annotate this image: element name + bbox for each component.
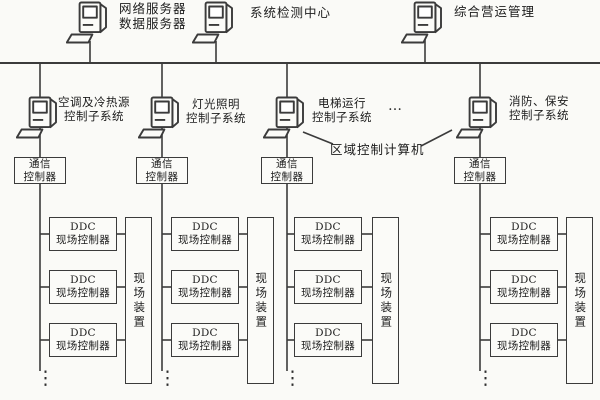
more-subsystems-ellipsis: … — [388, 98, 404, 114]
field-device-label: 现场装置 — [380, 272, 392, 330]
ddc-controller-box: DDC 现场控制器 — [294, 217, 362, 251]
field-device-label: 现场装置 — [574, 272, 586, 330]
bus-continuation-ellipsis: ⋮ — [476, 369, 495, 388]
comm-controller-box: 通信 控制器 — [14, 157, 66, 184]
field-device-box: 现场装置 — [247, 217, 274, 384]
comm-controller-box: 通信 控制器 — [454, 157, 506, 184]
ddc-controller-box: DDC 现场控制器 — [49, 217, 117, 251]
field-device-label: 现场装置 — [133, 272, 145, 330]
computer-icon — [192, 0, 240, 45]
elevator-subsystem-label: 电梯运行 控制子系统 — [308, 97, 376, 124]
ddc-controller-box: DDC 现场控制器 — [171, 217, 239, 251]
bus-continuation-ellipsis: ⋮ — [36, 369, 55, 388]
comm-controller-box: 通信 控制器 — [136, 157, 188, 184]
comm-controller-box: 通信 控制器 — [261, 157, 313, 184]
field-device-box: 现场装置 — [125, 217, 152, 384]
ddc-controller-box: DDC 现场控制器 — [490, 270, 558, 304]
computer-icon — [66, 0, 114, 45]
field-device-box: 现场装置 — [372, 217, 399, 384]
operations-mgmt-label: 综合营运管理 — [454, 5, 535, 20]
area-computer-pointer-right — [421, 130, 452, 146]
area-control-computer-label: 区域控制计算机 — [330, 139, 425, 158]
ddc-controller-box: DDC 现场控制器 — [49, 323, 117, 357]
bus-continuation-ellipsis: ⋮ — [283, 369, 302, 388]
bus-continuation-ellipsis: ⋮ — [158, 369, 177, 388]
computer-icon — [16, 95, 64, 140]
ddc-controller-box: DDC 现场控制器 — [490, 217, 558, 251]
ddc-controller-box: DDC 现场控制器 — [294, 323, 362, 357]
bas-architecture-diagram: 网络服务器 数据服务器 系统检测中心 综合营运管理 空调及冷热源 控制子系统 灯… — [0, 0, 600, 400]
field-device-label: 现场装置 — [255, 272, 267, 330]
computer-icon — [138, 95, 186, 140]
computer-icon — [401, 0, 449, 45]
ddc-controller-box: DDC 现场控制器 — [49, 270, 117, 304]
computer-icon — [456, 95, 504, 140]
lighting-subsystem-label: 灯光照明 控制子系统 — [178, 98, 254, 125]
ddc-controller-box: DDC 现场控制器 — [294, 270, 362, 304]
fire-security-subsystem-label: 消防、保安 控制子系统 — [497, 95, 581, 122]
ddc-controller-box: DDC 现场控制器 — [171, 323, 239, 357]
field-device-box: 现场装置 — [566, 217, 593, 384]
server-node-label: 网络服务器 数据服务器 — [119, 2, 187, 32]
ddc-controller-box: DDC 现场控制器 — [490, 323, 558, 357]
monitor-center-label: 系统检测中心 — [250, 6, 331, 21]
ddc-controller-box: DDC 现场控制器 — [171, 270, 239, 304]
computer-icon — [263, 95, 311, 140]
